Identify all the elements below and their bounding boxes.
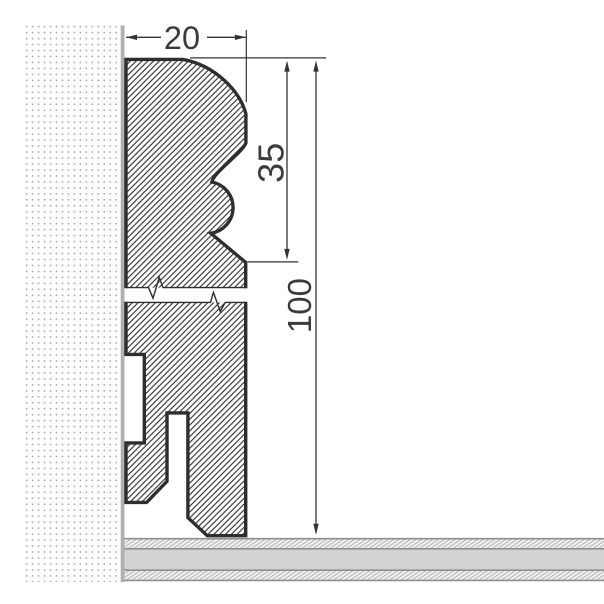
svg-text:100: 100 xyxy=(281,278,318,333)
svg-text:20: 20 xyxy=(164,20,200,56)
svg-text:35: 35 xyxy=(251,143,292,183)
